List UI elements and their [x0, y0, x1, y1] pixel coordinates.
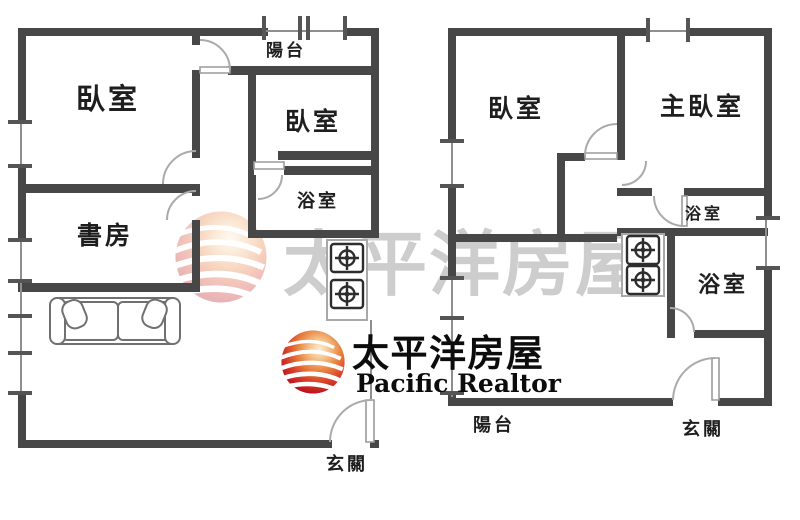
room-label-bedroom-small: 臥室: [285, 107, 341, 136]
bedroom-door-arc: [585, 124, 617, 156]
balcony-door-arc: [200, 40, 230, 70]
bathroom-door-leaf: [254, 162, 284, 169]
room-label-bathroom-upper: 浴室: [685, 204, 723, 223]
room-label-bathroom: 浴室: [297, 190, 339, 212]
floorplan-canvas: 太平洋房屋: [0, 0, 800, 520]
watermark: 太平洋房屋: [174, 211, 649, 306]
gas-stove-icon: [622, 234, 664, 296]
floorplan-page: 太平洋房屋: [0, 0, 800, 520]
room-label-study: 書房: [77, 221, 133, 250]
pacific-realtor-logo: 太平洋房屋 Pacific Realtor: [280, 330, 562, 398]
room-label-bedroom: 臥室: [488, 94, 544, 123]
pacific-realtor-logo-icon: [280, 330, 345, 393]
room-label-bedroom-large: 臥室: [76, 82, 140, 116]
room-label-entry: 玄關: [682, 418, 724, 440]
room-label-master-bedroom: 主臥室: [660, 92, 744, 121]
room-label-entry: 玄關: [326, 453, 368, 475]
room-label-bathroom-lower: 浴室: [698, 272, 748, 298]
bathroom-door-arc: [258, 175, 282, 199]
sofa-icon: [50, 297, 180, 344]
room-label-balcony: 陽台: [473, 414, 515, 436]
master-bedroom-door-arc: [622, 161, 646, 185]
gas-stove-icon: [327, 240, 367, 320]
entry-door-leaf: [366, 400, 374, 442]
entry-door-leaf: [712, 358, 719, 400]
study-door-arc: [167, 191, 196, 220]
entry-door-arc: [673, 358, 715, 400]
bedroom-door-arc: [163, 151, 196, 184]
bathroom-upper-door-arc: [654, 196, 684, 226]
room-label-balcony: 陽台: [266, 40, 306, 61]
balcony-door-leaf: [200, 67, 230, 73]
bedroom-door-leaf: [585, 153, 617, 159]
logo-name-en: Pacific Realtor: [356, 369, 562, 398]
